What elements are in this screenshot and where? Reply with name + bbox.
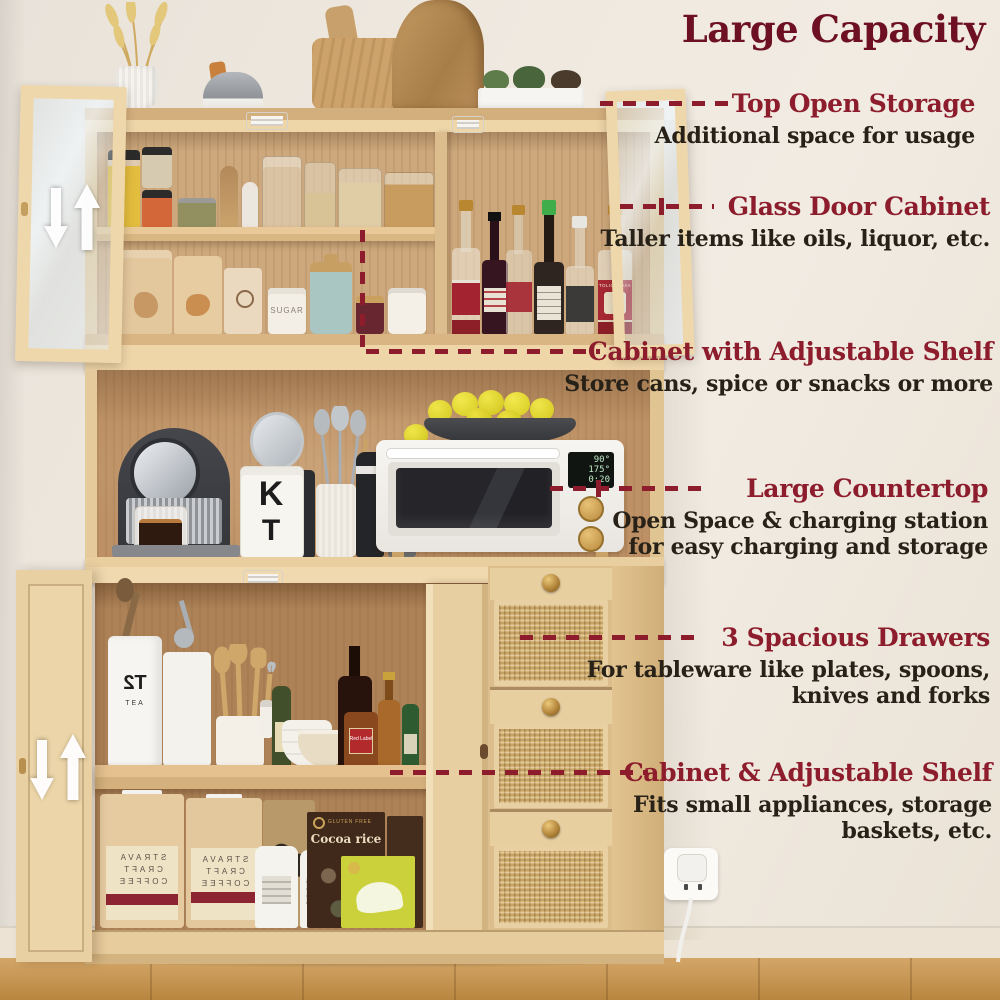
upper-cabinet-divider (435, 132, 447, 334)
whisky-label-text: Red Label (349, 736, 373, 742)
oven-display-line-2: 175° (568, 465, 610, 475)
amber-bottle (378, 700, 400, 767)
coffee-line-3: COFFEE (106, 876, 178, 888)
oven-knob (578, 526, 604, 552)
port-bottle-cap-green (542, 200, 556, 215)
door-catch-hardware (246, 112, 288, 130)
annotation-text: for easy charging and storage (612, 534, 988, 560)
coffee-bag-text: STRAVA CRAFT COFFEE (106, 852, 178, 888)
oven-knob (578, 496, 604, 522)
utensil-cup (316, 484, 356, 557)
liquor-bottle-cap (459, 200, 473, 211)
annotation-heading: Glass Door Cabinet (600, 191, 990, 223)
yellow-box-logo (348, 862, 360, 874)
power-cord (660, 896, 706, 964)
teal-canister (310, 262, 352, 334)
vodka-bottle-neck (575, 224, 585, 268)
green-bottle-label (404, 734, 417, 754)
power-plug (677, 854, 707, 882)
vanity-mirror (250, 412, 304, 470)
port-bottle-neck (544, 208, 554, 266)
annotation-glass-door-cabinet: Glass Door Cabinet Taller items like oil… (600, 191, 990, 252)
drawer-3-rattan-panel (494, 846, 608, 928)
herb-jar (178, 198, 216, 229)
drawer-2-rattan-panel (494, 724, 608, 808)
wine-bottle-cap (488, 212, 501, 221)
coffee-bag-band (106, 894, 178, 905)
coffee-line-1: STRAVA (106, 852, 178, 864)
dark-wine-bottle-neck (349, 646, 360, 680)
wine-bottle-label (484, 288, 506, 312)
cabinet-plinth (85, 930, 664, 964)
liquor-bottle-neck (461, 208, 471, 252)
lentil-jar (142, 190, 172, 229)
succulent-pinecone (551, 70, 581, 90)
cutting-board-light (312, 38, 404, 110)
tea-bag-brand: T2 (108, 672, 162, 695)
annotation-top-open-storage: Top Open Storage Additional space for us… (655, 88, 975, 149)
annotation-spacious-drawers: 3 Spacious Drawers For tableware like pl… (587, 622, 990, 709)
cocoa-name: Cocoa rice (307, 832, 385, 846)
liquor-bottle-label (452, 280, 480, 315)
annotation-large-countertop: Large Countertop Open Space & charging s… (612, 473, 988, 560)
annotation-cabinet-adjustable-shelf-top: Cabinet with Adjustable Shelf Store cans… (564, 336, 993, 397)
hutch-top-board (85, 108, 664, 132)
annotation-text: Open Space & charging station (612, 508, 988, 534)
upper-left-glass-door (15, 85, 127, 363)
white-bag (163, 652, 211, 767)
espresso-base-tray (112, 545, 240, 557)
upper-shelf-board (97, 227, 437, 241)
arrow-up-icon (60, 734, 86, 800)
kt-letter-k: K (240, 476, 302, 512)
sugar-canister-label: SUGAR (268, 306, 306, 315)
coffee-bag-text: STRAVA CRAFT COFFEE (191, 854, 257, 890)
glass-jar-tall (262, 156, 302, 231)
lower-right-door-knob (480, 744, 488, 759)
oven-display-line-3: 0:20 (568, 475, 610, 485)
annotation-text: Store cans, spice or snacks or more (564, 371, 993, 397)
amber-bottle-cap (383, 672, 395, 680)
kt-letter-t: T (240, 514, 302, 548)
oven-window (396, 468, 552, 528)
coffee-bag-band (191, 892, 257, 903)
drawer-1-knob (542, 574, 560, 592)
kraft-bag-print (134, 292, 158, 318)
annotation-text: Taller items like oils, liquor, etc. (600, 226, 990, 252)
coffee-line-1: STRAVA (191, 854, 257, 866)
cutting-board-rustic (392, 0, 484, 110)
toaster (203, 72, 263, 110)
tea-bag-sub: TEA (108, 700, 162, 707)
succulent-planter (478, 88, 584, 110)
vodka-bottle-cap-white (572, 216, 587, 228)
oven-handle-bar (386, 448, 560, 459)
annotation-text: For tableware like plates, spoons, (587, 657, 990, 683)
lower-left-door-knob (19, 758, 26, 774)
countertop-left-stile (85, 370, 97, 557)
liquor-bottle-label (506, 282, 532, 312)
vodka-bottle-label-dark (566, 286, 594, 322)
small-bag-badge (236, 290, 254, 308)
annotation-heading: Cabinet & Adjustable Shelf (624, 757, 992, 789)
coffee-line-2: CRAFT (191, 866, 257, 878)
succulent-leaves (513, 66, 545, 90)
oven-display-line-1: 90° (568, 455, 610, 465)
leader-cross-mark (596, 480, 601, 497)
cocoa-tagline: GLUTEN FREE (328, 819, 384, 825)
succulent-leaves (483, 70, 509, 90)
tea-spoon-head (116, 578, 134, 602)
outlet-pin-left (684, 884, 688, 890)
coffee-line-3: COFFEE (191, 878, 257, 890)
upper-left-door-knob (21, 202, 28, 216)
grain-jar (304, 162, 336, 231)
pestle-bottle (242, 182, 258, 229)
wine-bottle-neck (490, 218, 499, 264)
upper-interior-top-shadow (97, 132, 650, 152)
ladle-head (174, 628, 194, 648)
leader-vline-adjustable-shelf (360, 230, 365, 352)
annotation-heading: 3 Spacious Drawers (587, 622, 990, 654)
annotation-cabinet-adjustable-shelf-bottom: Cabinet & Adjustable Shelf Fits small ap… (624, 757, 992, 844)
clip-jar (388, 288, 426, 334)
liquor-bottle-neck (514, 212, 523, 254)
door-catch-hardware (452, 116, 484, 133)
coffee-line-2: CRAFT (106, 864, 178, 876)
annotation-text: Fits small appliances, storage (624, 792, 992, 818)
arrow-up-icon (74, 184, 100, 250)
outlet-pin-right (698, 884, 702, 890)
arrow-down-icon (30, 740, 54, 800)
annotation-heading: Cabinet with Adjustable Shelf (564, 336, 993, 368)
port-bottle-label (537, 286, 561, 320)
annotation-text: baskets, etc. (624, 818, 992, 844)
page-title: Large Capacity (682, 6, 985, 52)
pepper-grinder (220, 166, 238, 229)
leader-line-cabinet-shelf (390, 770, 648, 775)
drawer-2-knob (542, 698, 560, 716)
pretzel-jar (384, 172, 434, 231)
lower-shelf-board (95, 765, 435, 789)
arrow-down-icon (44, 188, 68, 248)
liquor-bottle-band (452, 320, 480, 334)
product-infographic: SUGAR TOLICHNAYA K (0, 0, 1000, 1000)
drawer-3-knob (542, 820, 560, 838)
utensil-crock (216, 716, 264, 767)
cocoa-logo (313, 817, 325, 829)
pasta-jar (338, 168, 382, 231)
annotation-heading: Large Countertop (612, 473, 988, 505)
annotation-text: knives and forks (587, 683, 990, 709)
milk-bottle-label (262, 876, 291, 904)
annotation-text: Additional space for usage (655, 123, 975, 149)
liquor-bottle-cap (512, 205, 525, 215)
spice-jar (142, 147, 172, 188)
annotation-heading: Top Open Storage (655, 88, 975, 120)
